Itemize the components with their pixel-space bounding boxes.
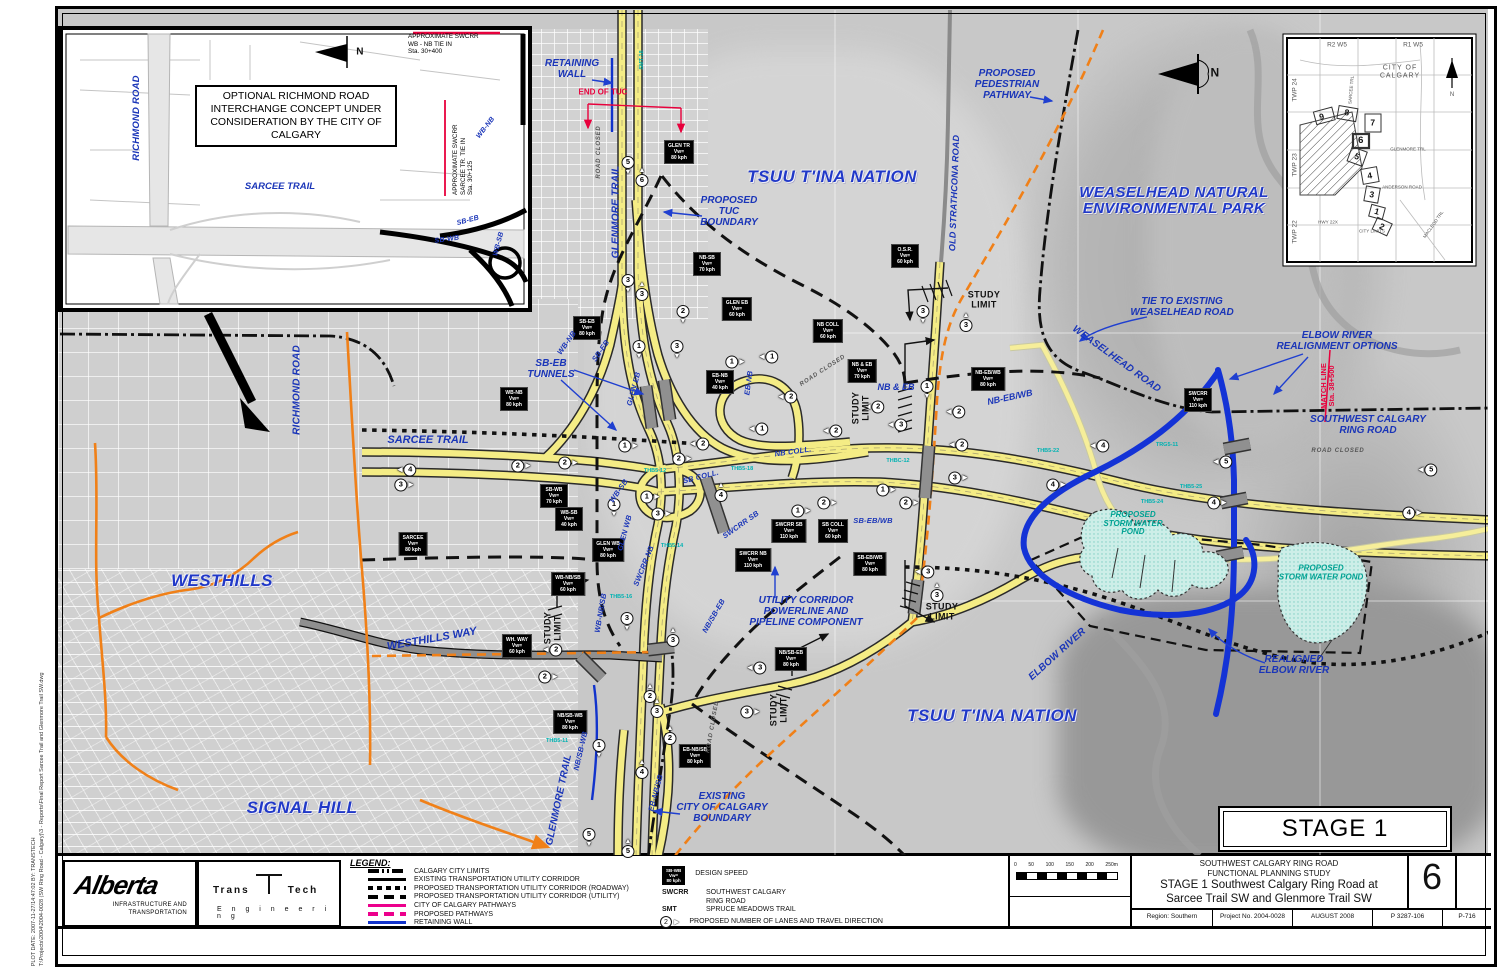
legend-lanes-row: 2 ▶ PROPOSED NUMBER OF LANES AND TRAVEL … <box>660 916 883 928</box>
abbrev-label: SOUTHWEST CALGARY RING ROAD <box>706 889 786 907</box>
legend-design-speed-row: SB-WB Vw= 80 kph DESIGN SPEED <box>662 866 748 885</box>
abbrev-label: SPRUCE MEADOWS TRAIL <box>706 906 796 915</box>
scale-tick: 200 <box>1085 862 1093 868</box>
scale-bar-ticks: 050100150200250m <box>1014 862 1118 868</box>
sheet-number: 6 <box>1409 856 1455 898</box>
legend-item-dots: PROPOSED TRANSPORTATION UTILITY CORRIDOR… <box>368 884 629 892</box>
stage-label: STAGE 1 <box>1223 811 1447 847</box>
legend-item-pink: CITY OF CALGARY PATHWAYS <box>368 901 516 909</box>
title-line-2: FUNCTIONAL PLANNING STUDY <box>1134 869 1404 878</box>
title-line-3: STAGE 1 Southwest Calgary Ring Road at <box>1134 879 1404 891</box>
transtech-logo-box: Trans Tech E n g i n e e r i n g <box>197 860 341 927</box>
design-speed-label: DESIGN SPEED <box>695 870 748 879</box>
alberta-logo-subtitle: INFRASTRUCTURE AND TRANSPORTATION <box>113 902 187 918</box>
tb-div-1 <box>1008 853 1010 929</box>
scale-tick: 50 <box>1028 862 1034 868</box>
transtech-logo: Trans Tech <box>213 874 318 896</box>
plot-date-note: PLOT DATE: 2007-11-27/14:47:02 BY: TRANS… <box>31 837 37 966</box>
lane-symbol-number: 2 <box>660 916 672 928</box>
legend-item-blue: RETAINING WALL <box>368 919 472 927</box>
legend-swatch-dots-icon <box>368 886 406 891</box>
residential-grid-north <box>528 29 708 319</box>
tb-project: Project No. 2004-0028 <box>1213 913 1292 920</box>
inset-tie-in-note-side: APPROXIMATE SWCRR SARCEE TR. TIE IN Sta.… <box>452 124 475 195</box>
tb-hdiv <box>1130 908 1491 910</box>
legend-swatch-citylimits-icon <box>368 869 406 873</box>
plot-path-note: T:\Projects\2004\2004-0028 (SW Ring Road… <box>39 672 45 966</box>
lane-count-symbol: 2 ▶ <box>660 916 679 928</box>
legend-abbrev-SMT: SMTSPRUCE MEADOWS TRAIL <box>662 906 796 915</box>
legend-item-dash: PROPOSED TRANSPORTATION UTILITY CORRIDOR… <box>368 893 620 901</box>
scale-tick: 0 <box>1014 862 1017 868</box>
lanes-legend-label: PROPOSED NUMBER OF LANES AND TRAVEL DIRE… <box>689 918 883 927</box>
tb-div-4 <box>1455 853 1457 910</box>
legend-item-label: CALGARY CITY LIMITS <box>414 868 489 875</box>
alberta-logo: Alberta <box>72 870 161 901</box>
legend-item-label: EXISTING TRANSPORTATION UTILITY CORRIDOR <box>414 876 580 883</box>
stage-box: STAGE 1 <box>1218 806 1452 852</box>
lane-symbol-arrow-icon: ▶ <box>674 918 679 926</box>
inset-concept-note-text: OPTIONAL RICHMOND ROAD INTERCHANGE CONCE… <box>197 90 395 143</box>
drawing-sheet: TSUU T'INA NATIONTSUU T'INA NATIONWEASEL… <box>0 0 1500 971</box>
title-line-4: Sarcee Trail SW and Glenmore Trail SW <box>1134 893 1404 905</box>
transtech-word-1: Trans <box>213 885 250 896</box>
scale-hdiv <box>1008 896 1130 897</box>
scale-tick: 100 <box>1046 862 1054 868</box>
legend-item-label: PROPOSED TRANSPORTATION UTILITY CORRIDOR… <box>414 885 629 892</box>
inset-concept-note: OPTIONAL RICHMOND ROAD INTERCHANGE CONCE… <box>195 85 397 147</box>
legend-item-label: PROPOSED TRANSPORTATION UTILITY CORRIDOR… <box>414 893 620 900</box>
legend-item-pinkdash: PROPOSED PATHWAYS <box>368 910 493 918</box>
scale-tick: 150 <box>1066 862 1074 868</box>
abbrev-code: SMT <box>662 906 696 913</box>
commercial-grid-west <box>58 299 578 569</box>
transtech-word-2: Tech <box>288 885 319 896</box>
inset-tie-in-note-top: APPROXIMATE SWCRR WB - NB TIE IN Sta. 30… <box>408 33 518 56</box>
tb-region: Region: Southern <box>1132 913 1212 920</box>
design-speed-sample-icon: SB-WB Vw= 80 kph <box>662 866 685 885</box>
legend-swatch-dash-icon <box>368 895 406 900</box>
plot-edge-note: PLOT DATE: 2007-11-27/14:47:02 BY: TRANS… <box>30 466 47 966</box>
band-divider <box>55 853 1491 856</box>
legend-swatch-pinkdash-icon <box>368 912 406 916</box>
legend-item-label: CITY OF CALGARY PATHWAYS <box>414 902 516 909</box>
scale-tick: 250m <box>1105 862 1118 868</box>
legend-abbrev-SWCRR: SWCRRSOUTHWEST CALGARY RING ROAD <box>662 889 786 907</box>
legend-swatch-pink-icon <box>368 904 406 907</box>
scale-bar <box>1016 872 1118 880</box>
legend-swatch-blue-icon <box>368 921 406 924</box>
legend-item-label: RETAINING WALL <box>414 919 472 926</box>
legend-swatch-solid-icon <box>368 878 406 881</box>
tb-date: AUGUST 2008 <box>1293 913 1372 920</box>
legend-item-label: PROPOSED PATHWAYS <box>414 911 493 918</box>
tb-code-2: P-716 <box>1443 913 1491 920</box>
residential-grid-signal-hill <box>58 569 578 855</box>
legend-item-citylimits: CALGARY CITY LIMITS <box>368 867 489 875</box>
transtech-engineering-label: E n g i n e e r i n g <box>217 906 339 920</box>
alberta-logo-box: Alberta INFRASTRUCTURE AND TRANSPORTATIO… <box>63 860 197 927</box>
tb-code: P 3287-106 <box>1373 913 1442 920</box>
abbrev-code: SWCRR <box>662 889 696 896</box>
legend-item-solid: EXISTING TRANSPORTATION UTILITY CORRIDOR <box>368 876 580 884</box>
title-line-1: SOUTHWEST CALGARY RING ROAD <box>1134 859 1404 868</box>
transtech-t-glyph <box>256 874 282 896</box>
river-valley-texture <box>1148 29 1348 449</box>
